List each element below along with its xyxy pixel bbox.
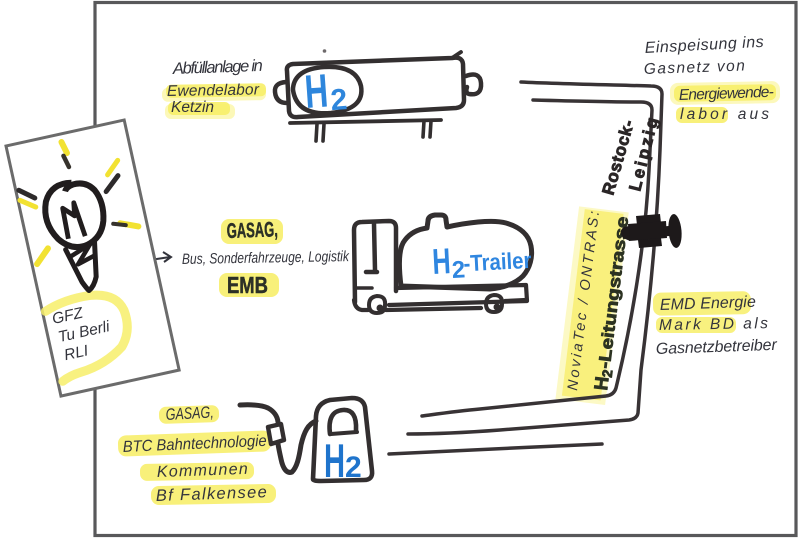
svg-text:2: 2 bbox=[329, 83, 348, 117]
svg-text:H: H bbox=[431, 241, 451, 282]
svg-text:EMD Energie: EMD Energie bbox=[660, 294, 757, 314]
svg-text:EMB: EMB bbox=[227, 272, 268, 298]
svg-text:-Trailer: -Trailer bbox=[463, 247, 532, 277]
svg-text:H: H bbox=[303, 64, 330, 118]
svg-text:Abfüllanlage in: Abfüllanlage in bbox=[172, 57, 264, 78]
svg-text:GASAG,: GASAG, bbox=[226, 218, 278, 243]
svg-text:Energiewende-: Energiewende- bbox=[679, 84, 775, 104]
svg-text:2: 2 bbox=[345, 451, 362, 484]
svg-text:Bus, Sonderfahrzeuge, Logistik: Bus, Sonderfahrzeuge, Logistik bbox=[182, 248, 350, 268]
svg-text:labor aus: labor aus bbox=[680, 106, 769, 123]
svg-text:Gasnetz von: Gasnetz von bbox=[644, 57, 746, 78]
svg-text:H: H bbox=[324, 436, 345, 488]
svg-text:GASAG,: GASAG, bbox=[165, 404, 214, 424]
svg-text:Ketzin: Ketzin bbox=[171, 99, 214, 116]
svg-text:Ewendelabor: Ewendelabor bbox=[167, 81, 260, 100]
svg-text:Kommunen: Kommunen bbox=[157, 461, 249, 481]
